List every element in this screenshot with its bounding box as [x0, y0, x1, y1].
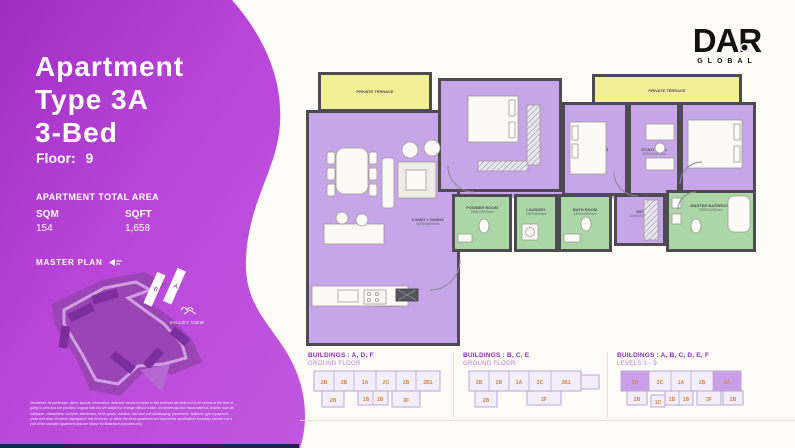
keyplan-bce: BUILDINGS : B, C, E GROUND FLOOR 2B 2B 1… — [463, 352, 613, 418]
svg-text:1A: 1A — [516, 380, 523, 386]
sqm-column: SQM 154 — [36, 209, 59, 234]
title-line-1: Apartment — [35, 50, 184, 83]
master-bedroom: MASTER BEDROOM 3600x3600mm — [680, 102, 756, 196]
terrace-right-label: PRIVATE TERRACE — [595, 77, 739, 105]
svg-text:1B: 1B — [363, 397, 370, 403]
title-line-3: 3-Bed — [35, 116, 184, 149]
laundry-label: LAUNDRY 1350x800mm — [518, 207, 554, 217]
powder-room: POWDER ROOM 1500x2000mm — [452, 194, 512, 252]
svg-text:2B: 2B — [341, 380, 348, 386]
footer-bar — [0, 444, 299, 448]
laundry: LAUNDRY 1350x800mm — [514, 194, 558, 252]
page-title: Apartment Type 3A 3-Bed — [35, 50, 184, 149]
wic: WIC 1100x1900mm — [614, 194, 666, 246]
bathroom-label: BATH ROOM 2400x1550mm — [562, 207, 608, 217]
brochure-page: Apartment Type 3A 3-Bed Floor: 9 APARTME… — [0, 0, 795, 448]
floor-indicator: Floor: 9 — [36, 150, 93, 166]
title-line-2: Type 3A — [35, 83, 184, 116]
terrace-left-label: PRIVATE TERRACE — [321, 75, 429, 109]
svg-text:2B: 2B — [496, 380, 503, 386]
svg-text:1C: 1C — [655, 400, 662, 406]
svg-text:2B: 2B — [699, 380, 706, 386]
svg-text:2C: 2C — [383, 380, 390, 386]
svg-text:2B: 2B — [476, 380, 483, 386]
svg-text:1B: 1B — [683, 397, 690, 403]
svg-text:2B: 2B — [330, 398, 337, 404]
bathroom: BATH ROOM 2400x1550mm — [558, 194, 612, 252]
valley-view-marker: VALLEY VIEW — [170, 308, 205, 326]
svg-text:2B: 2B — [403, 380, 410, 386]
keyplan-adf-drawing: 2B 2B 1A 2C 2B 2B1 2B 1B 1B 2F — [308, 367, 448, 413]
study-area-label: STUDY AREA 3000x2400mm — [632, 147, 676, 157]
svg-text:1A: 1A — [678, 380, 685, 386]
keyplan-all-title: BUILDINGS : A, B, C, D, E, F — [617, 352, 767, 359]
svg-text:2B: 2B — [730, 397, 737, 403]
svg-text:1B: 1B — [377, 397, 384, 403]
sqm-value: 154 — [36, 223, 59, 234]
keyplan-bce-title: BUILDINGS : B, C, E — [463, 352, 613, 359]
logo-wordmark: DAR — [681, 24, 773, 58]
sqft-label: SQFT — [125, 209, 152, 220]
area-header: APARTMENT TOTAL AREA — [36, 192, 159, 202]
svg-text:2B1: 2B1 — [561, 380, 570, 386]
column-divider-2 — [607, 352, 608, 418]
keyplan-adf: BUILDINGS : A, D, F GROUND FLOOR 2B 2B 1… — [308, 352, 458, 418]
bedroom-03-label: BEDROOM 03 4000x3000mm — [567, 147, 623, 157]
study-area: STUDY AREA 3000x2400mm — [628, 102, 680, 196]
floor-plan: PRIVATE TERRACE PRIVATE TERRACE LIVING +… — [298, 64, 766, 354]
svg-text:2C: 2C — [537, 380, 544, 386]
wic-label: WIC 1100x1900mm — [618, 209, 662, 219]
svg-text:2B: 2B — [634, 397, 641, 403]
svg-text:2C: 2C — [657, 380, 664, 386]
floor-label: Floor: — [36, 150, 76, 166]
private-terrace-left: PRIVATE TERRACE — [318, 72, 432, 112]
svg-text:2F: 2F — [403, 398, 409, 404]
keyplan-adf-title: BUILDINGS : A, D, F — [308, 352, 458, 359]
dar-global-logo: DAR GLOBAL — [681, 24, 773, 65]
svg-text:2B: 2B — [483, 398, 490, 404]
globe-icon — [740, 43, 749, 52]
bedroom-03: BEDROOM 03 4000x3000mm — [562, 102, 628, 196]
keyplan-all-drawing: 3A 2C 1A 2B 3A 2B 1C 1B 1B 2F 2B — [617, 367, 757, 413]
svg-text:3A: 3A — [724, 380, 731, 386]
keyplan-bce-drawing: 2B 2B 1A 2C 2B1 2B 2F — [463, 367, 603, 413]
kitchen-label: KITCHEN 3000x2000mm — [357, 299, 417, 309]
sqft-value: 1,658 — [125, 223, 152, 234]
svg-text:2B: 2B — [321, 380, 328, 386]
sqft-column: SQFT 1,658 — [125, 209, 152, 234]
column-divider-1 — [453, 352, 454, 418]
master-plan-map: B A VALLEY VIEW — [24, 262, 229, 402]
floor-value: 9 — [86, 150, 94, 166]
svg-text:1A: 1A — [362, 380, 369, 386]
living-dining-kitchen: LIVING + DINING 5600x5000mm KITCHEN 3000… — [306, 110, 460, 346]
svg-text:1B: 1B — [669, 397, 676, 403]
sqm-label: SQM — [36, 209, 59, 220]
master-bedroom-label: MASTER BEDROOM 3600x3600mm — [685, 147, 751, 157]
keyplan-all: BUILDINGS : A, B, C, D, E, F LEVELS 1 - … — [617, 352, 767, 418]
svg-text:2F: 2F — [541, 397, 547, 403]
bedroom-02-label: BEDROOM 02 3000x3200mm — [459, 121, 531, 131]
living-dining-label: LIVING + DINING 5600x5000mm — [399, 217, 457, 227]
bedroom-02: BEDROOM 02 3000x3200mm — [438, 78, 562, 192]
master-bathroom: MASTER BATHROOM 2000x2400mm — [666, 190, 756, 252]
master-bathroom-label: MASTER BATHROOM 2000x2400mm — [683, 203, 739, 213]
svg-text:2F: 2F — [706, 397, 712, 403]
valley-view-label: VALLEY VIEW — [170, 320, 205, 325]
svg-text:3A: 3A — [632, 380, 639, 386]
disclaimer-text: Disclaimer: All particulars, plans, layo… — [30, 401, 238, 427]
svg-text:2B1: 2B1 — [423, 380, 432, 386]
bottom-rule — [300, 420, 795, 421]
powder-room-label: POWDER ROOM 1500x2000mm — [456, 205, 508, 215]
